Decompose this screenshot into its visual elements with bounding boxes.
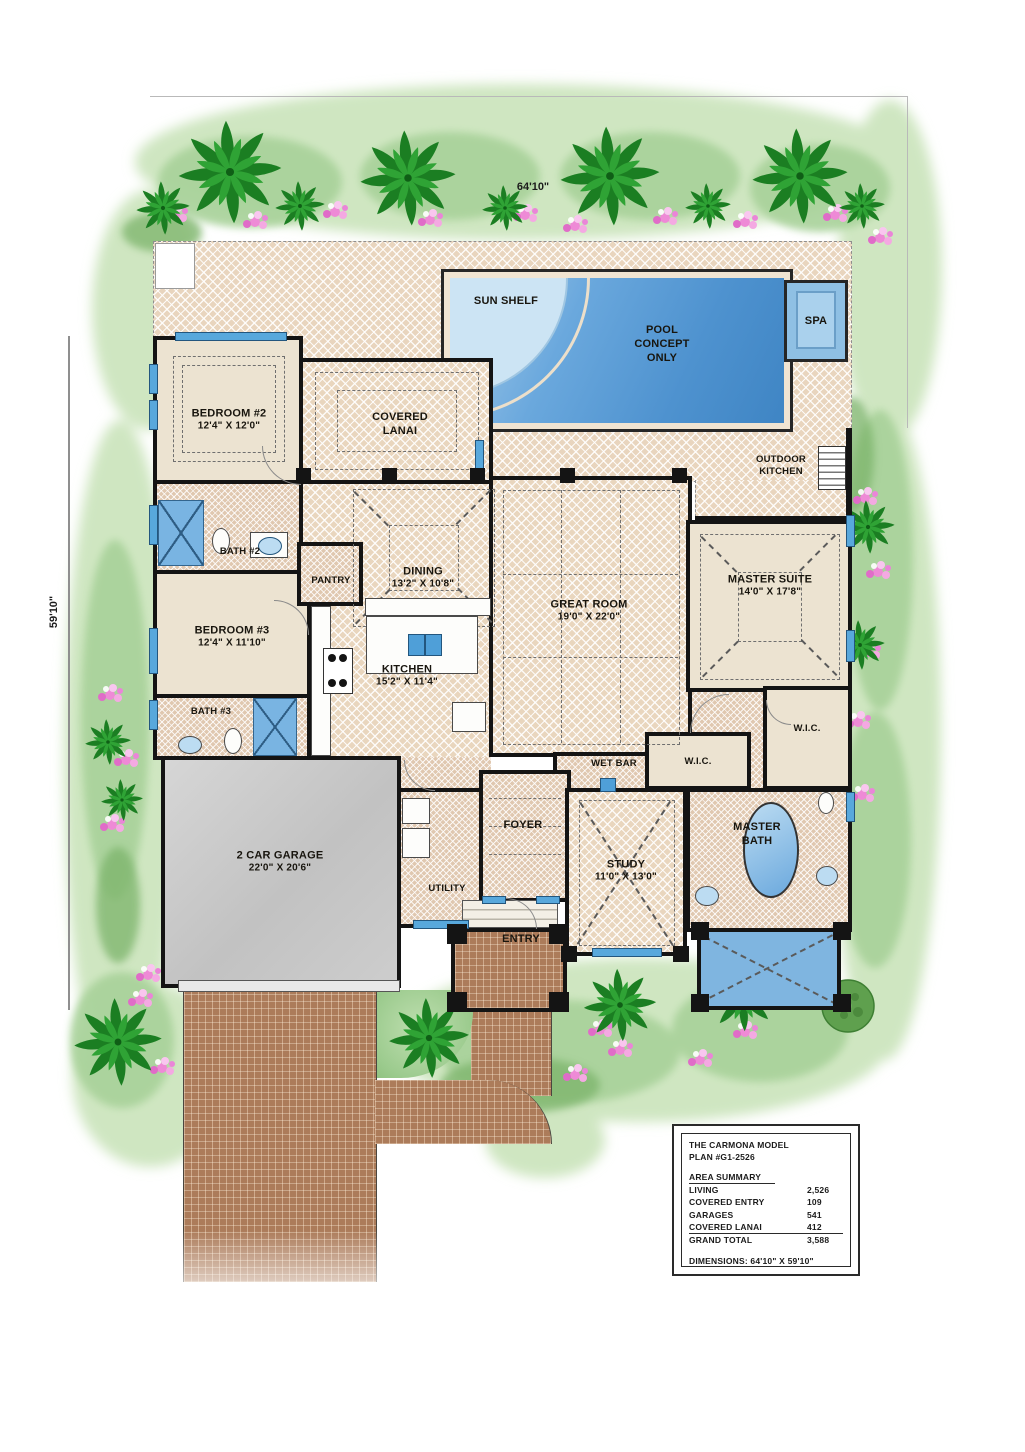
- shower-icon: [253, 698, 297, 756]
- dimension-line-left: [68, 336, 70, 1010]
- label-wic-hall: W.I.C.: [684, 756, 711, 768]
- great-room-beam: [503, 574, 678, 575]
- entry-column: [549, 924, 569, 944]
- label-bedroom-3: BEDROOM #3 12'4" X 11'10": [195, 624, 270, 651]
- window: [149, 400, 158, 430]
- area-row: COVERED ENTRY 109: [689, 1196, 843, 1208]
- area-row-total: GRAND TOTAL 3,588: [689, 1234, 843, 1246]
- column: [560, 468, 575, 483]
- bay-column: [691, 922, 709, 940]
- entry-column: [447, 924, 467, 944]
- label-wic-master: W.I.C.: [793, 723, 820, 735]
- sink-icon: [695, 886, 719, 906]
- dryer-icon: [402, 828, 430, 858]
- label-covered-lanai: COVERED LANAI: [364, 410, 436, 438]
- window: [846, 515, 855, 547]
- foyer-beam: [489, 854, 561, 855]
- washer-icon: [402, 798, 430, 824]
- label-bath-2: BATH #2: [220, 546, 260, 558]
- overall-dimensions: DIMENSIONS: 64'10" X 59'10": [689, 1255, 843, 1267]
- label-spa: SPA: [805, 314, 827, 328]
- window: [846, 792, 855, 822]
- kitchen-counter: [365, 598, 491, 616]
- property-line-top: [150, 96, 908, 97]
- window: [149, 505, 158, 545]
- sink-icon: [258, 537, 282, 555]
- label-kitchen: KITCHEN 15'2" X 11'4": [376, 663, 438, 690]
- garage-door: [178, 980, 400, 992]
- label-sun-shelf: SUN SHELF: [474, 294, 538, 308]
- toilet-icon: [224, 728, 242, 754]
- title-block: THE CARMONA MODEL PLAN #G1-2526 AREA SUM…: [672, 1124, 860, 1276]
- title-block-inner: THE CARMONA MODEL PLAN #G1-2526 AREA SUM…: [681, 1133, 851, 1267]
- label-master-suite: MASTER SUITE 14'0" X 17'8": [728, 573, 812, 600]
- window: [149, 700, 158, 730]
- bay-column: [833, 922, 851, 940]
- label-outdoor-kitchen: OUTDOOR KITCHEN: [745, 454, 817, 478]
- window: [846, 630, 855, 662]
- plan-number: PLAN #G1-2526: [689, 1151, 843, 1163]
- label-garage: 2 CAR GARAGE 22'0" X 20'6": [237, 849, 324, 876]
- entry-column: [549, 992, 569, 1012]
- label-bath-3: BATH #3: [191, 706, 231, 718]
- area-row: LIVING 2,526: [689, 1184, 843, 1196]
- floor-plan-canvas: 64'10" 59'10": [0, 0, 1025, 1452]
- bay-column: [561, 946, 577, 962]
- entry-column: [447, 992, 467, 1012]
- label-utility: UTILITY: [428, 883, 465, 895]
- grill-icon: [818, 446, 846, 490]
- column: [382, 468, 397, 483]
- label-entry: ENTRY: [502, 932, 540, 946]
- room-foyer: [479, 770, 571, 902]
- label-pool: POOL CONCEPT ONLY: [624, 323, 700, 365]
- column: [672, 468, 687, 483]
- window: [149, 364, 158, 394]
- area-summary-heading: AREA SUMMARY: [689, 1171, 775, 1184]
- sink-icon: [425, 634, 442, 656]
- foyer-beam: [489, 798, 561, 799]
- bay-column: [673, 946, 689, 962]
- top-dimension-label: 64'10": [517, 181, 549, 193]
- plan-title: THE CARMONA MODEL: [689, 1139, 843, 1151]
- sink-icon: [178, 736, 202, 754]
- tub-icon: [743, 802, 799, 898]
- label-foyer: FOYER: [504, 818, 543, 832]
- outdoor-kitchen-wall: [695, 516, 852, 522]
- label-great-room: GREAT ROOM 19'0" X 22'0": [551, 598, 628, 625]
- column: [296, 468, 311, 483]
- label-wet-bar: WET BAR: [591, 758, 637, 770]
- window: [149, 628, 158, 674]
- sink-icon: [816, 866, 838, 886]
- left-dimension-label: 59'10": [48, 596, 60, 628]
- fridge-icon: [452, 702, 486, 732]
- area-row: COVERED LANAI 412: [689, 1221, 843, 1234]
- label-study: STUDY 11'0" X 13'0": [595, 858, 657, 885]
- bay-column: [833, 994, 851, 1012]
- driveway-fade: [160, 1230, 580, 1330]
- label-master-bath: MASTER BATH: [725, 820, 789, 848]
- window: [536, 896, 560, 904]
- sink-icon: [408, 634, 425, 656]
- window: [592, 948, 662, 957]
- window: [482, 896, 506, 904]
- shower-icon: [158, 500, 204, 566]
- toilet-icon: [818, 792, 834, 814]
- window: [175, 332, 287, 341]
- column: [470, 468, 485, 483]
- great-room-beam: [503, 657, 678, 658]
- deck-step: [155, 243, 195, 289]
- sink-icon: [600, 778, 616, 792]
- area-row: GARAGES 541: [689, 1209, 843, 1221]
- range-icon: [323, 648, 353, 694]
- window: [475, 440, 484, 470]
- deck-wall: [846, 428, 852, 522]
- label-pantry: PANTRY: [311, 575, 350, 587]
- label-bedroom-2: BEDROOM #2 12'4" X 12'0": [192, 407, 267, 434]
- bay-column: [691, 994, 709, 1012]
- property-line-right: [907, 96, 908, 428]
- label-dining: DINING 13'2" X 10'8": [392, 565, 454, 592]
